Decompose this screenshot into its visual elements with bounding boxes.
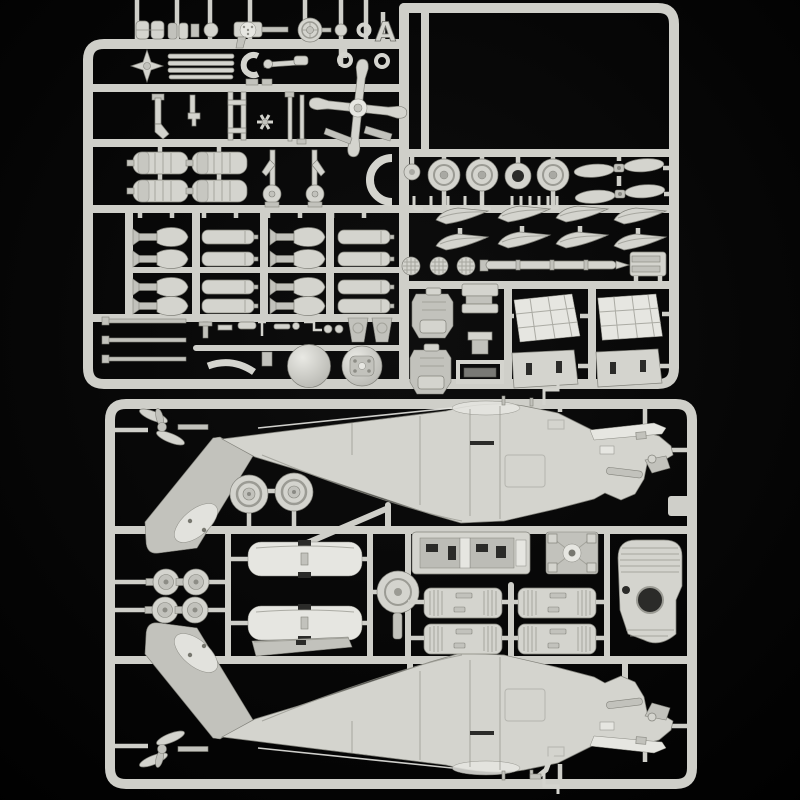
rotor-hub-dome — [288, 345, 331, 388]
stub-wing-skin — [248, 604, 362, 642]
engine-cowling-panel — [514, 294, 580, 342]
small-fitting — [246, 79, 258, 85]
rocket-pod — [127, 152, 188, 174]
main-gearbox — [546, 532, 598, 574]
rocket-pod — [186, 180, 247, 202]
pilot-seat — [412, 288, 453, 338]
engine-access-cowl — [424, 588, 502, 618]
engine-access-cowl — [518, 624, 596, 654]
engine-access-cowl — [424, 624, 502, 654]
engine-cowling-panel — [596, 292, 664, 342]
rocket-tube — [338, 252, 394, 266]
engine-cowling-panel — [512, 350, 578, 388]
sprue-letter: A — [375, 17, 396, 48]
rocket-pod — [186, 152, 247, 174]
rocket-tube — [202, 299, 258, 313]
road-wheel — [428, 159, 460, 191]
ball-part — [335, 24, 347, 36]
rocket-tube — [338, 230, 394, 244]
sprue-photo: A — [0, 0, 800, 800]
road-wheel — [537, 159, 569, 191]
mesh-disc — [430, 257, 448, 275]
long-rocket-part — [480, 260, 629, 271]
small-fitting — [262, 79, 272, 85]
small-fitting — [262, 352, 272, 366]
cap-part — [191, 24, 199, 37]
frame-tab — [668, 496, 690, 516]
engine-access-cowl — [518, 588, 596, 618]
cockpit-tub — [412, 532, 530, 574]
engine-nacelle-panel — [618, 540, 682, 643]
engine-cowling-panel — [596, 349, 662, 387]
mesh-disc — [457, 257, 475, 275]
rocket-tube — [202, 252, 258, 266]
rocket-tube — [202, 230, 258, 244]
stub-wing-skin — [248, 540, 362, 578]
pilot-seat — [410, 344, 451, 394]
mesh-disc — [402, 257, 420, 275]
rocket-tube — [202, 280, 258, 294]
small-wheel-hub — [409, 169, 415, 175]
engine-intake — [275, 473, 313, 511]
rocket-pod — [127, 180, 188, 202]
rocket-tube — [338, 299, 394, 313]
rocket-tube — [338, 280, 394, 294]
rotor-hub-dome-plate — [342, 346, 382, 386]
sprue-photo-svg: A — [0, 0, 800, 800]
tire-part — [505, 163, 531, 189]
engine-intake — [230, 475, 268, 513]
road-wheel — [466, 159, 498, 191]
ball-part — [204, 23, 218, 37]
